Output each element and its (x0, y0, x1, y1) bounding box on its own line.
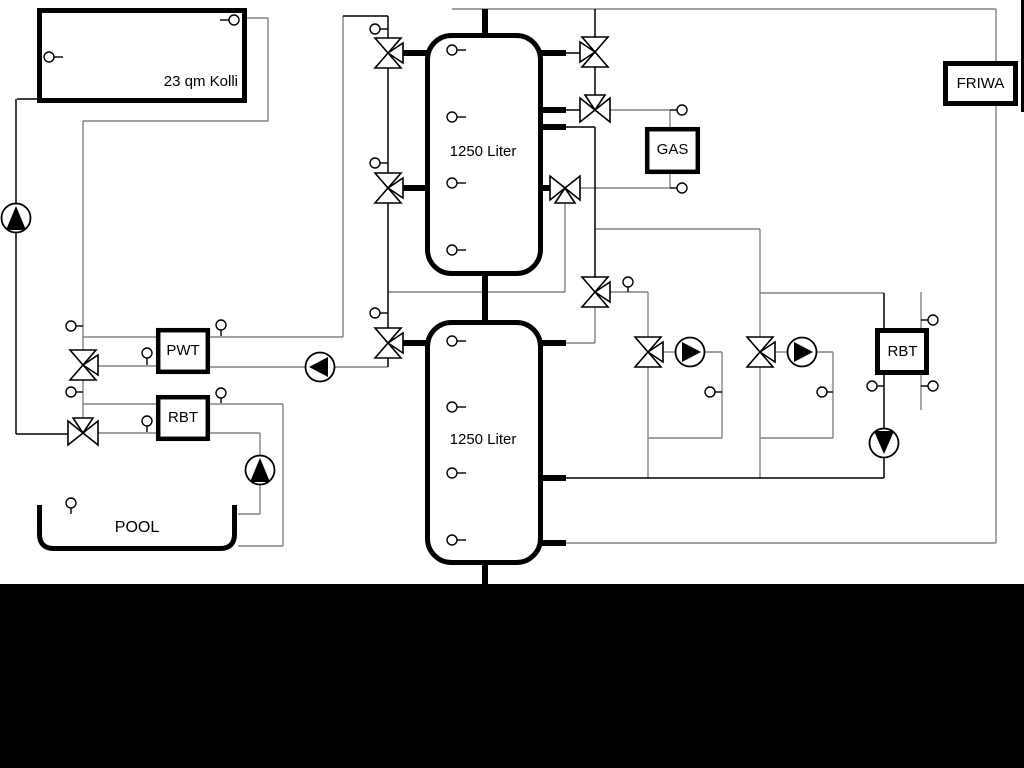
pump-pwt-icon (306, 353, 335, 382)
rbt-right-label: RBT (875, 328, 930, 375)
three-way-valve-icon (70, 350, 98, 380)
three-way-valve-icon (580, 37, 608, 67)
three-way-valve-icon (550, 176, 580, 203)
three-way-valve-icon (68, 418, 98, 445)
tank-bottom-label: 1250 Liter (425, 432, 541, 448)
gas-label: GAS (645, 127, 700, 173)
pool-label: POOL (37, 520, 237, 536)
collector-label: 23 qm Kolli (132, 74, 238, 90)
pump-pool-icon (246, 456, 275, 485)
diagram-canvas: 23 qm Kolli 1250 Liter 1250 Liter PWT RB… (0, 0, 1024, 768)
three-way-valve-icon (375, 173, 403, 203)
friwa-label: FRIWA (943, 61, 1018, 106)
letterbox-band (0, 584, 1024, 768)
three-way-valve-icon (375, 328, 403, 358)
three-way-valve-icon (582, 277, 610, 307)
three-way-valve-icon (635, 337, 663, 367)
pwt-label: PWT (156, 328, 210, 373)
pump-collector-icon (2, 204, 31, 233)
pump-heating-circuit-1-icon (676, 338, 705, 367)
rbt-left-label: RBT (156, 395, 210, 440)
three-way-valve-icon (375, 38, 403, 68)
pump-heating-circuit-2-icon (788, 338, 817, 367)
three-way-valve-icon (747, 337, 775, 367)
schematic-drawing (0, 0, 1024, 768)
tank-top-label: 1250 Liter (425, 144, 541, 160)
three-way-valve-icon (580, 95, 610, 122)
pump-rbt-right-icon (870, 429, 899, 458)
